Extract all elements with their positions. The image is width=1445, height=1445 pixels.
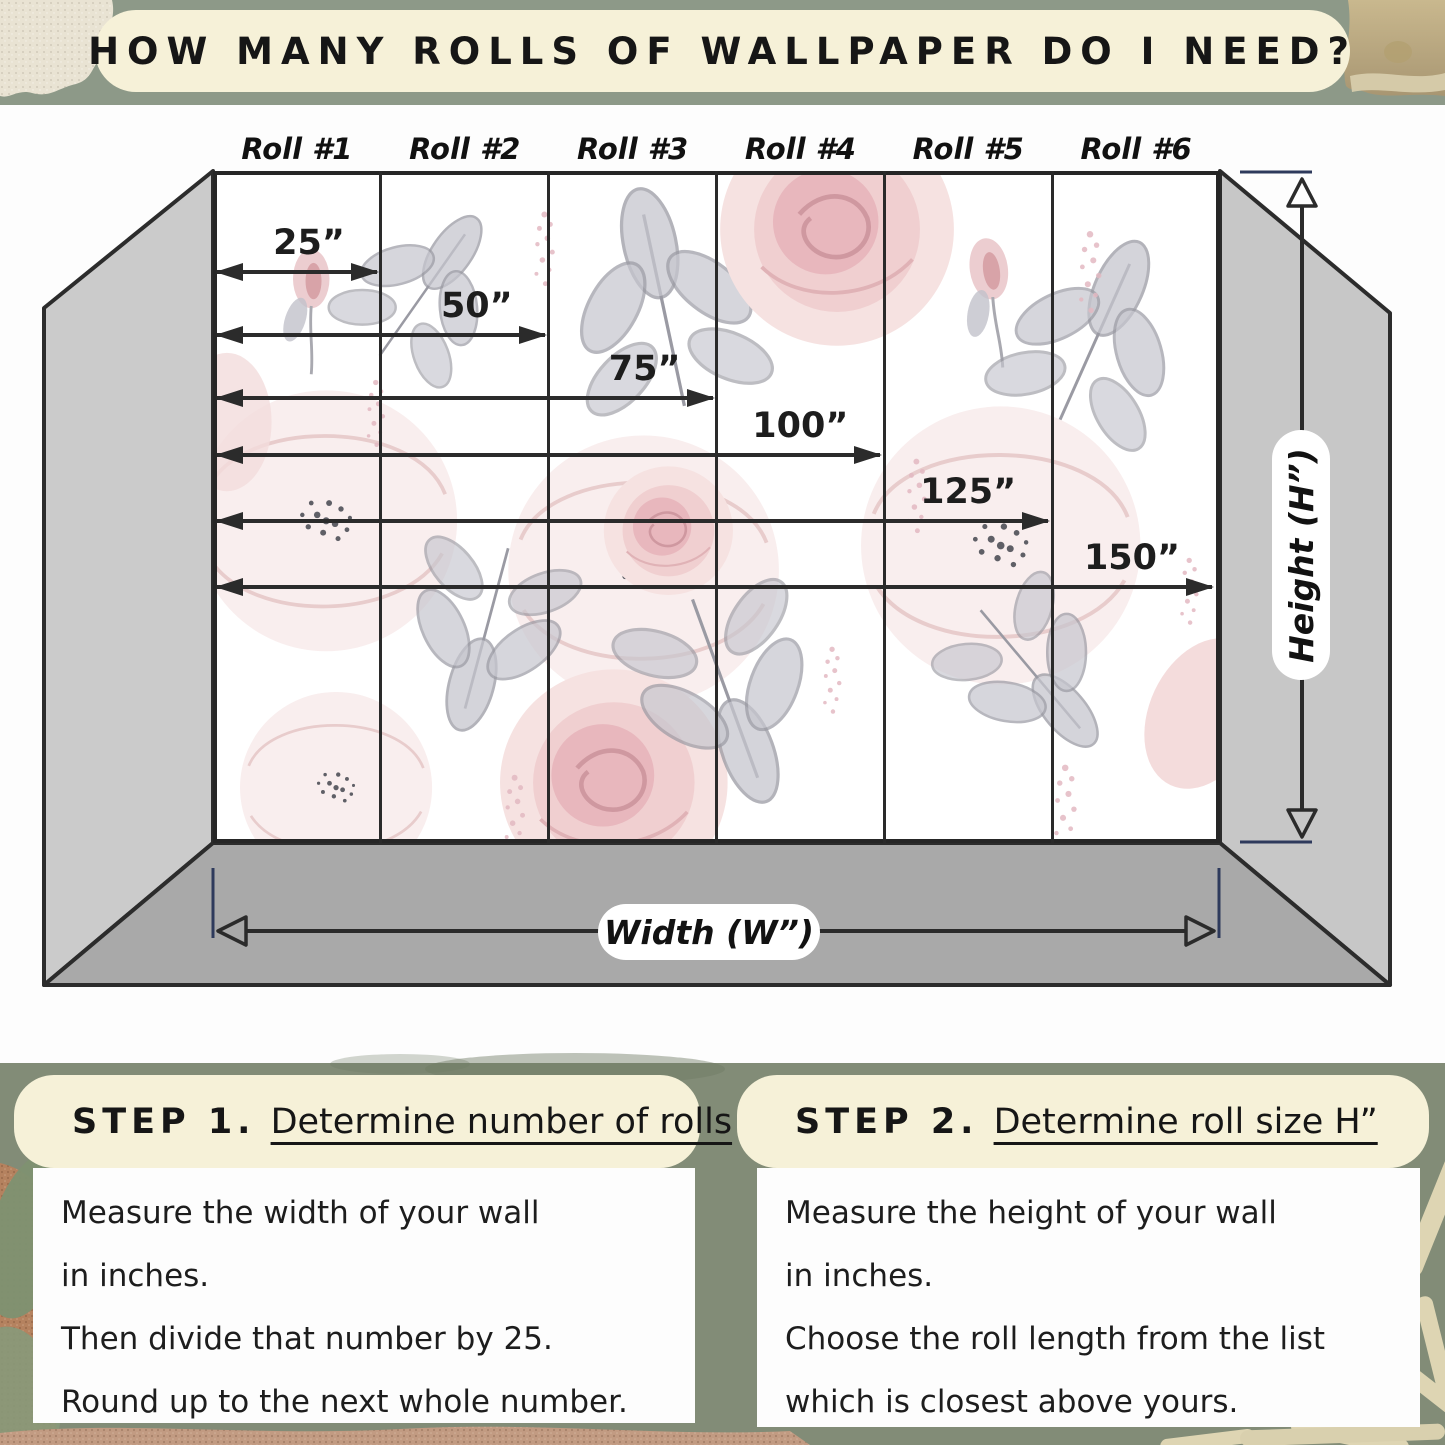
- measure-arrow-line: [217, 519, 1048, 523]
- measure-label: 100”: [648, 406, 848, 446]
- measure-arrowhead-right: [1186, 578, 1214, 596]
- step1-header: STEP 1. Determine number of rolls: [14, 1075, 700, 1168]
- wall-overlay: Roll #1Roll #2Roll #3Roll #4Roll #5Roll …: [213, 171, 1220, 843]
- step2-line: which is closest above yours.: [785, 1371, 1412, 1434]
- step1-title: Determine number of rolls: [271, 1102, 732, 1142]
- measure-arrowhead-right: [1022, 512, 1050, 530]
- measure-arrow-line: [217, 396, 713, 400]
- step2-line: in inches.: [785, 1245, 1412, 1308]
- step2-line: Measure the height of your wall: [785, 1182, 1412, 1245]
- step1-line: Measure the width of your wall: [61, 1182, 687, 1245]
- measure-arrowhead-right: [854, 446, 882, 464]
- roll-label: Roll #6: [1052, 132, 1220, 166]
- roll-label: Roll #4: [717, 132, 885, 166]
- measure-arrowhead-left: [215, 326, 243, 344]
- measure-arrowhead-right: [519, 326, 547, 344]
- roll-divider: [1051, 171, 1054, 843]
- step2-title: Determine roll size H”: [994, 1102, 1378, 1142]
- measure-arrowhead-left: [215, 512, 243, 530]
- measure-arrowhead-left: [215, 446, 243, 464]
- step1-line: in inches.: [61, 1245, 687, 1308]
- roll-divider: [379, 171, 382, 843]
- roll-divider: [547, 171, 550, 843]
- height-label: Height (H”): [1282, 448, 1321, 663]
- measure-label: 125”: [816, 472, 1016, 512]
- wallpaper-wall: Roll #1Roll #2Roll #3Roll #4Roll #5Roll …: [213, 171, 1220, 843]
- step2-prefix: STEP 2.: [795, 1102, 978, 1142]
- measure-label: 75”: [481, 349, 681, 389]
- measure-label: 50”: [313, 286, 513, 326]
- step2-header: STEP 2. Determine roll size H”: [737, 1075, 1429, 1168]
- measure-arrow-line: [217, 453, 880, 457]
- roll-label: Roll #3: [549, 132, 717, 166]
- step1-line: Round up to the next whole number.: [61, 1371, 687, 1434]
- measure-arrow-line: [217, 333, 545, 337]
- width-label: Width (W”): [604, 913, 814, 952]
- measure-label: 150”: [980, 538, 1180, 578]
- measure-arrowhead-left: [215, 263, 243, 281]
- step2-line: Choose the roll length from the list: [785, 1308, 1412, 1371]
- step1-prefix: STEP 1.: [72, 1102, 255, 1142]
- roll-label: Roll #1: [213, 132, 381, 166]
- roll-label: Roll #5: [884, 132, 1052, 166]
- width-label-pill: Width (W”): [598, 904, 820, 960]
- roll-divider: [715, 171, 718, 843]
- step1-line: Then divide that number by 25.: [61, 1308, 687, 1371]
- measure-arrowhead-right: [351, 263, 379, 281]
- measure-arrowhead-left: [215, 578, 243, 596]
- step2-body: Measure the height of your wall in inche…: [757, 1168, 1420, 1427]
- measure-arrow-line: [217, 585, 1212, 589]
- roll-label: Roll #2: [381, 132, 549, 166]
- measure-arrowhead-left: [215, 389, 243, 407]
- measure-arrowhead-right: [687, 389, 715, 407]
- step1-body: Measure the width of your wall in inches…: [33, 1168, 695, 1423]
- measure-label: 25”: [145, 223, 345, 263]
- height-label-pill: Height (H”): [1272, 430, 1330, 680]
